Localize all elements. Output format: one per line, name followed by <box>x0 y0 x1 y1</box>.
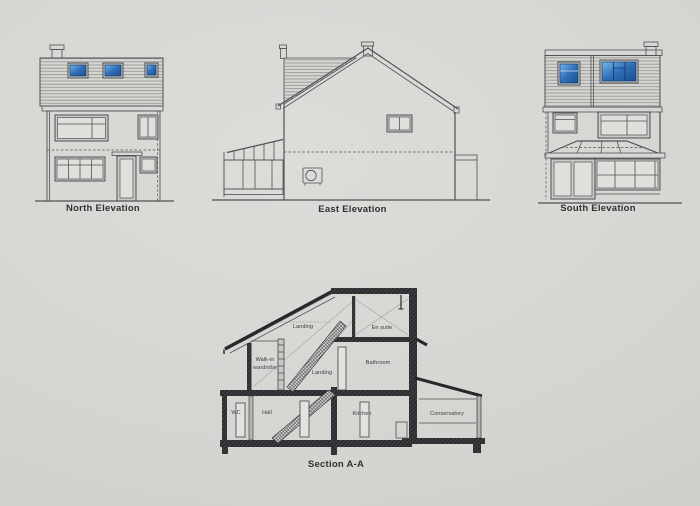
footing <box>473 444 481 453</box>
conservatory-glazing <box>595 159 660 194</box>
door-side-window <box>140 157 157 173</box>
cladding-window <box>68 63 88 78</box>
chimney-breast <box>278 339 284 390</box>
north-upper-cladding <box>40 58 163 106</box>
east-elevation-drawing <box>210 40 495 210</box>
ground-floor-window <box>55 157 105 181</box>
east-elevation-caption: East Elevation <box>210 204 495 215</box>
cladding-window <box>558 62 580 85</box>
south-upper-cladding <box>545 56 660 108</box>
room-label-wardrobe: wardrobe <box>252 365 277 371</box>
south-chimney <box>644 42 658 56</box>
cladding-window <box>145 63 158 77</box>
flat-roof <box>331 288 417 294</box>
section-caption: Section A-A <box>205 459 467 470</box>
cut-structure <box>220 288 485 455</box>
south-elevation-drawing <box>535 38 695 210</box>
north-chimney <box>50 45 64 59</box>
floor-band <box>42 106 163 111</box>
conservatory-slab <box>402 438 485 444</box>
door-leaf <box>300 401 309 437</box>
room-label-conservatory: Conservatory <box>430 411 464 417</box>
footing <box>222 447 228 454</box>
door-leaf <box>236 403 245 437</box>
front-door <box>117 156 136 201</box>
drawing-sheet: Landing En suite Walk-in wardrobe Landin… <box>0 0 700 506</box>
wc-wall <box>249 396 253 440</box>
room-label-landing: Landing <box>312 370 332 376</box>
cladding-window-wide <box>600 60 638 83</box>
gf-left-wall <box>222 396 227 440</box>
first-floor-window-right <box>598 112 650 138</box>
north-elevation-drawing <box>28 42 178 212</box>
first-floor-window-large <box>55 115 108 141</box>
stairs-upper <box>287 321 346 392</box>
first-floor-slab <box>220 390 412 396</box>
vent-pipe <box>399 295 404 309</box>
rear-wall <box>409 288 417 440</box>
ensuite-wall <box>352 296 355 337</box>
door-canopy-side <box>455 155 477 200</box>
door-leaf <box>338 347 346 390</box>
cladding-window <box>103 63 123 78</box>
conservatory-doors <box>551 159 595 199</box>
first-floor-window-left <box>553 113 577 133</box>
room-label-en-suite: En suite <box>372 325 393 331</box>
first-floor-window-small <box>138 115 158 139</box>
rear-eaves <box>416 339 427 345</box>
east-window <box>387 115 412 132</box>
wardrobe-wall <box>247 343 252 390</box>
room-label-hall: Hall <box>262 410 272 416</box>
ground-slab <box>220 440 412 447</box>
kitchen-unit <box>396 422 407 438</box>
section-drawing: Landing En suite Walk-in wardrobe Landin… <box>205 275 495 465</box>
ac-unit <box>303 168 322 186</box>
conservatory-right-wall <box>477 396 481 438</box>
conservatory-roof <box>415 378 482 396</box>
room-label-bathroom: Bathroom <box>366 360 391 366</box>
room-label-walk-in: Walk-in <box>256 357 275 363</box>
floor-band <box>543 107 662 112</box>
rear-wing-clad-gable <box>280 45 357 104</box>
attic-floor <box>333 337 415 342</box>
footing <box>331 447 337 455</box>
door-leaf <box>360 402 369 437</box>
east-wall <box>284 104 455 200</box>
south-elevation-caption: South Elevation <box>523 203 673 214</box>
room-label-kitchen: Kitchen <box>352 411 371 417</box>
north-elevation-caption: North Elevation <box>28 203 178 214</box>
room-label-attic-landing: Landing <box>293 324 313 330</box>
roof-fascia <box>545 50 662 56</box>
lean-to-conservatory <box>224 140 283 198</box>
conservatory <box>545 141 665 199</box>
room-label-wc: WC <box>231 410 240 416</box>
